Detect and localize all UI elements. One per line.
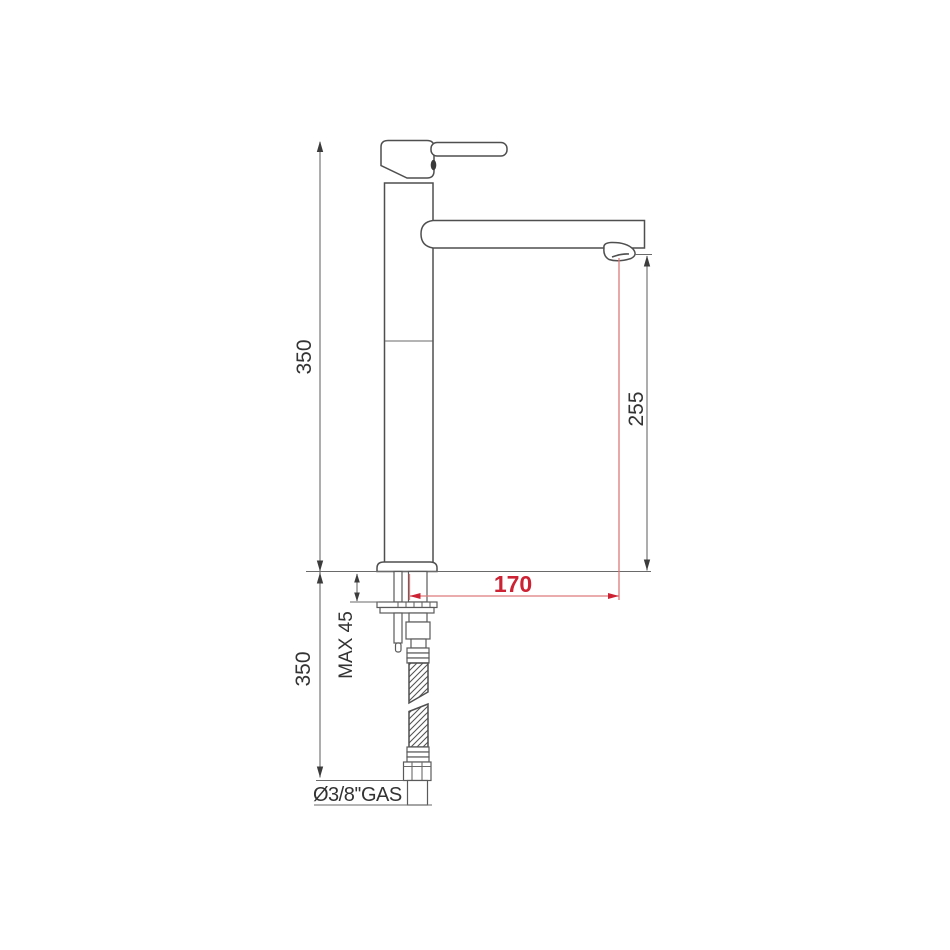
base-flange xyxy=(377,562,437,572)
dim-height-above-counter: 350 xyxy=(293,141,323,572)
supply-shank-lower xyxy=(406,613,430,648)
dim-spout-height: 255 xyxy=(625,255,652,571)
dim-label-height-above: 350 xyxy=(293,339,316,374)
dim-label-max-thickness: MAX 45 xyxy=(336,611,357,679)
hose-crimp-lower xyxy=(407,747,429,762)
dim-label-spout-height: 255 xyxy=(625,391,648,426)
stud-tip xyxy=(396,643,402,652)
technical-drawing: 350 350 MAX 45 255 170 Ø3/8''GAS xyxy=(0,0,950,950)
dim-max-counter-thickness: MAX 45 xyxy=(336,574,379,679)
label-connection-thread: Ø3/8''GAS xyxy=(313,784,402,806)
mounting-washer xyxy=(377,602,437,613)
dim-label-hose-length: 350 xyxy=(292,651,315,686)
threaded-stud-upper xyxy=(394,572,402,603)
dim-spout-reach: 170 xyxy=(410,258,620,600)
threaded-stud-lower xyxy=(394,613,402,643)
flex-hose-lower xyxy=(409,704,428,747)
lever-pivot-icon xyxy=(431,160,437,170)
lever-handle xyxy=(431,143,507,157)
flex-hose-upper xyxy=(409,663,428,703)
faucet-head xyxy=(381,141,434,179)
thread-connector xyxy=(408,781,428,806)
hose-crimp-upper xyxy=(407,648,429,663)
faucet xyxy=(377,141,645,572)
drawing-canvas: 350 350 MAX 45 255 170 Ø3/8''GAS xyxy=(0,0,950,950)
under-counter-assembly xyxy=(377,572,437,806)
hex-nut xyxy=(404,762,432,781)
dim-label-spout-reach: 170 xyxy=(494,571,532,597)
